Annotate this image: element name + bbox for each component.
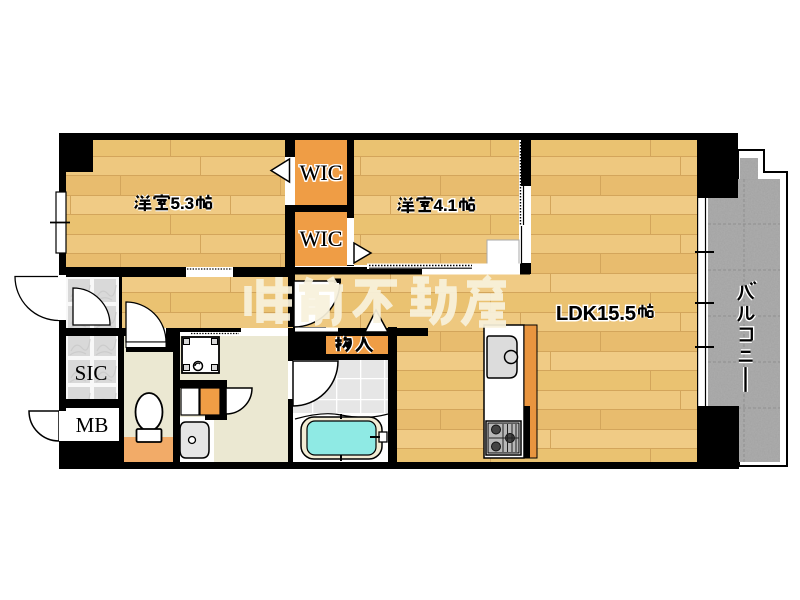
svg-text:WIC: WIC [300, 160, 343, 185]
svg-text:MB: MB [76, 413, 109, 437]
svg-text:WIC: WIC [300, 226, 343, 251]
svg-text:LDK15.5: LDK15.5 [556, 303, 636, 325]
svg-text:SIC: SIC [75, 361, 108, 385]
svg-text:5.3: 5.3 [171, 194, 195, 213]
svg-text:4.1: 4.1 [434, 196, 458, 215]
